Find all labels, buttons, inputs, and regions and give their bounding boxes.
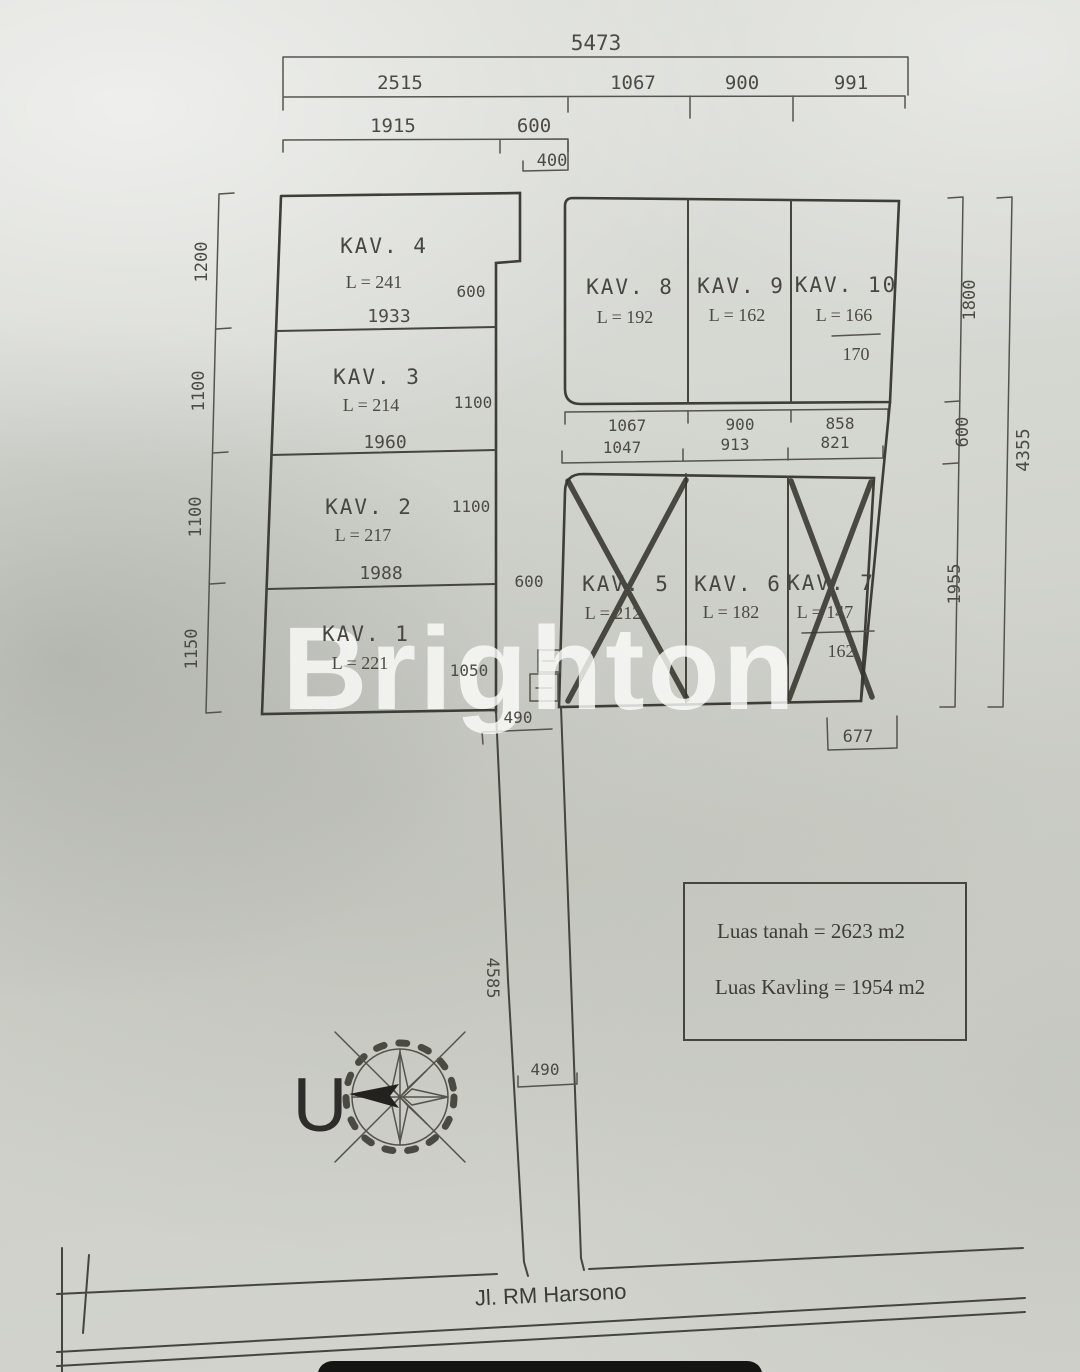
dim-600-right: 600 — [953, 417, 973, 448]
kav-10-title: KAV. 10 — [795, 273, 898, 297]
kav-9-title: KAV. 9 — [697, 274, 785, 298]
dim-4585: 4585 — [482, 958, 502, 999]
dim-821: 821 — [821, 433, 850, 452]
info-box-line2: Luas Kavling = 1954 m2 — [715, 975, 925, 999]
dim-991: 991 — [834, 72, 868, 94]
dim-1067-top: 1067 — [610, 72, 656, 94]
info-box — [684, 883, 966, 1040]
compass-north-label: U — [293, 1063, 348, 1148]
kav-6-area: L = 182 — [703, 602, 759, 622]
dim-600-kav4: 600 — [457, 282, 486, 301]
compass-north-arrow — [349, 1084, 399, 1108]
dim-chain-right-inner — [940, 197, 963, 707]
main-road-lines — [57, 1248, 1025, 1372]
dim-900-mid: 900 — [726, 415, 755, 434]
property-right-boundary — [861, 402, 890, 701]
kav-7-area-alt: 162 — [828, 641, 855, 661]
kav-4-area: L = 241 — [346, 272, 402, 292]
compass-rose — [335, 1032, 465, 1162]
right-top-block-dividers — [688, 199, 791, 403]
right-top-block-outline — [565, 198, 899, 404]
dim-677: 677 — [843, 727, 874, 747]
kav-10-area-alt: 170 — [843, 344, 870, 364]
dim-chain-right-outer — [988, 197, 1012, 707]
kav-1-title: KAV. 1 — [322, 622, 410, 646]
dim-1047: 1047 — [603, 438, 642, 457]
kav-5-area: L = 212 — [585, 603, 641, 623]
dim-1960: 1960 — [363, 432, 406, 453]
dim-400: 400 — [537, 151, 568, 171]
dim-row-3 — [283, 139, 568, 153]
kav-8-area: L = 192 — [597, 307, 653, 327]
kav-2-title: KAV. 2 — [325, 495, 413, 519]
dim-1150-left: 1150 — [182, 629, 202, 670]
kav-3-area: L = 214 — [343, 395, 399, 415]
kav-5-title: KAV. 5 — [582, 572, 670, 596]
main-road-label: Jl. RM Harsono — [474, 1279, 627, 1311]
kav-7-area: L = 147 — [797, 602, 853, 622]
kav-8-title: KAV. 8 — [586, 275, 674, 299]
dim-858: 858 — [826, 414, 855, 433]
kav-3-title: KAV. 3 — [333, 365, 421, 389]
dim-1955-right: 1955 — [945, 564, 965, 605]
kav10-underline — [832, 334, 880, 336]
dim-1200-left: 1200 — [192, 242, 212, 283]
dim-1800-right: 1800 — [960, 280, 980, 321]
dim-1100-left-b: 1100 — [186, 497, 206, 538]
dim-490-top: 490 — [504, 708, 533, 727]
dim-1100-left-a: 1100 — [189, 371, 209, 412]
bottom-cropped-button[interactable] — [318, 1361, 762, 1372]
info-box-line1: Luas tanah = 2623 m2 — [717, 919, 905, 943]
kav-1-area: L = 221 — [332, 653, 388, 673]
dim-1933: 1933 — [367, 306, 410, 327]
dim-1050: 1050 — [450, 661, 489, 680]
kav-9-area: L = 162 — [709, 305, 765, 325]
dim-1067-mid: 1067 — [608, 416, 647, 435]
dim-1100-kav3: 1100 — [454, 393, 493, 412]
dim-total-width: 5473 — [571, 31, 622, 55]
dim-600-corridor: 600 — [515, 572, 544, 591]
dim-1988: 1988 — [359, 563, 402, 584]
dim-490-bottom: 490 — [531, 1060, 560, 1079]
kav-2-area: L = 217 — [335, 525, 391, 545]
dim-1915: 1915 — [370, 115, 416, 137]
dim-900-top: 900 — [725, 72, 759, 94]
access-road-lines — [496, 707, 584, 1276]
kav-4-title: KAV. 4 — [340, 234, 428, 258]
dim-2515: 2515 — [377, 72, 423, 94]
dim-913: 913 — [721, 435, 750, 454]
dim-600-top: 600 — [517, 115, 551, 137]
kav-7-title: KAV. 7 — [787, 571, 875, 595]
kav-6-title: KAV. 6 — [694, 572, 782, 596]
dim-1100-kav2: 1100 — [452, 497, 491, 516]
dim-4355: 4355 — [1013, 428, 1034, 471]
kav-10-area: L = 166 — [816, 305, 872, 325]
site-plan-drawing: U Luas tanah = 2623 m2 Luas Kavling = 19… — [0, 0, 1080, 1372]
